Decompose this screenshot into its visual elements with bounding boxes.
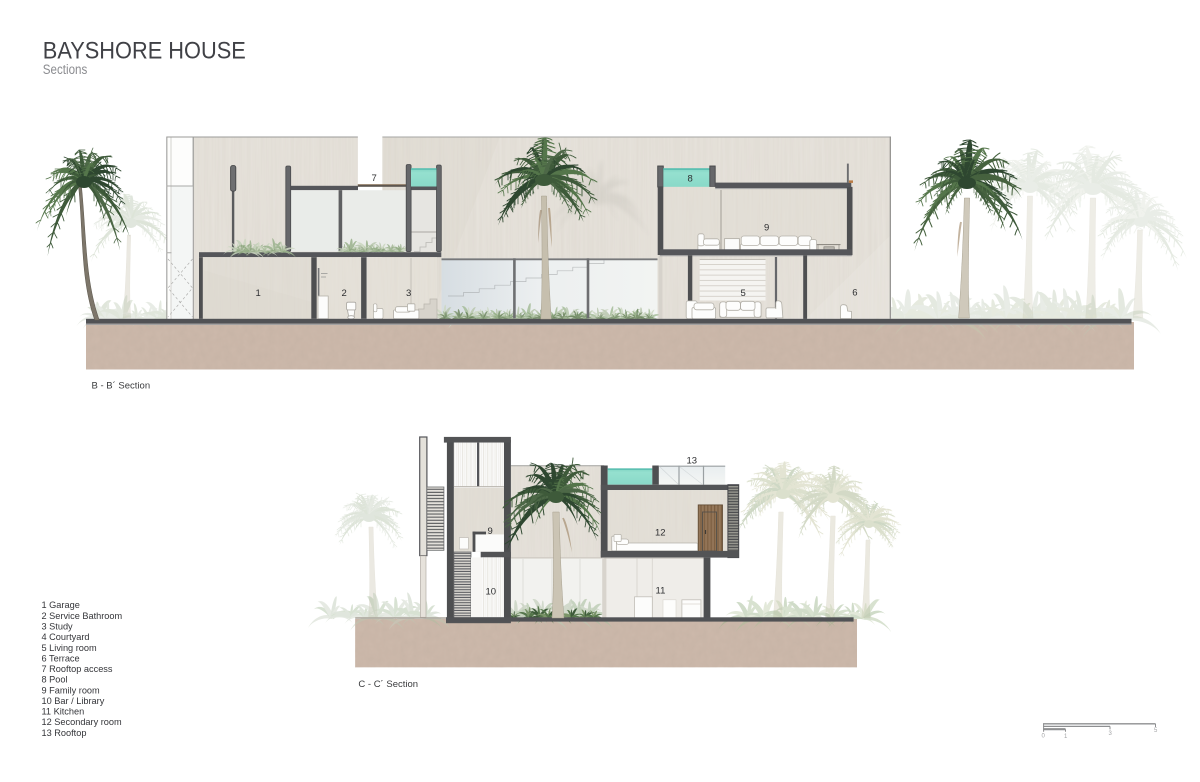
svg-text:13: 13 bbox=[687, 456, 698, 467]
svg-text:1: 1 bbox=[256, 288, 261, 299]
svg-text:7 Rooftop access: 7 Rooftop access bbox=[42, 664, 113, 674]
svg-text:3: 3 bbox=[406, 288, 411, 299]
svg-text:9: 9 bbox=[764, 223, 769, 234]
svg-text:11 Kitchen: 11 Kitchen bbox=[42, 707, 85, 717]
svg-text:12: 12 bbox=[655, 528, 666, 539]
svg-text:BAYSHORE HOUSE: BAYSHORE HOUSE bbox=[43, 38, 246, 65]
svg-text:5 Living room: 5 Living room bbox=[42, 643, 97, 653]
svg-text:7: 7 bbox=[372, 173, 377, 184]
svg-text:6: 6 bbox=[852, 288, 857, 299]
svg-text:10 Bar / Library: 10 Bar / Library bbox=[42, 696, 105, 706]
svg-text:8: 8 bbox=[688, 174, 693, 185]
svg-text:2: 2 bbox=[342, 288, 347, 299]
svg-text:Sections: Sections bbox=[43, 62, 88, 77]
svg-text:5: 5 bbox=[1154, 728, 1158, 734]
svg-text:9: 9 bbox=[488, 526, 493, 537]
svg-text:11: 11 bbox=[656, 586, 666, 597]
svg-text:8 Pool: 8 Pool bbox=[42, 675, 68, 685]
svg-text:9 Family room: 9 Family room bbox=[42, 685, 101, 695]
svg-text:5: 5 bbox=[741, 288, 746, 299]
svg-text:C - C´ Section: C - C´ Section bbox=[358, 679, 418, 690]
svg-text:3 Study: 3 Study bbox=[42, 622, 74, 632]
svg-text:12 Secondary room: 12 Secondary room bbox=[42, 717, 123, 727]
svg-text:0: 0 bbox=[1042, 734, 1046, 740]
svg-text:B - B´ Section: B - B´ Section bbox=[92, 381, 151, 392]
svg-text:3: 3 bbox=[1109, 731, 1113, 737]
svg-text:6 Terrace: 6 Terrace bbox=[42, 653, 80, 663]
svg-text:1 Garage: 1 Garage bbox=[42, 600, 80, 610]
svg-text:13 Rooftop: 13 Rooftop bbox=[42, 728, 87, 738]
svg-text:4 Courtyard: 4 Courtyard bbox=[42, 632, 90, 642]
svg-text:2 Service Bathroom: 2 Service Bathroom bbox=[42, 611, 123, 621]
svg-text:10: 10 bbox=[486, 587, 497, 598]
svg-text:1: 1 bbox=[1064, 734, 1068, 740]
